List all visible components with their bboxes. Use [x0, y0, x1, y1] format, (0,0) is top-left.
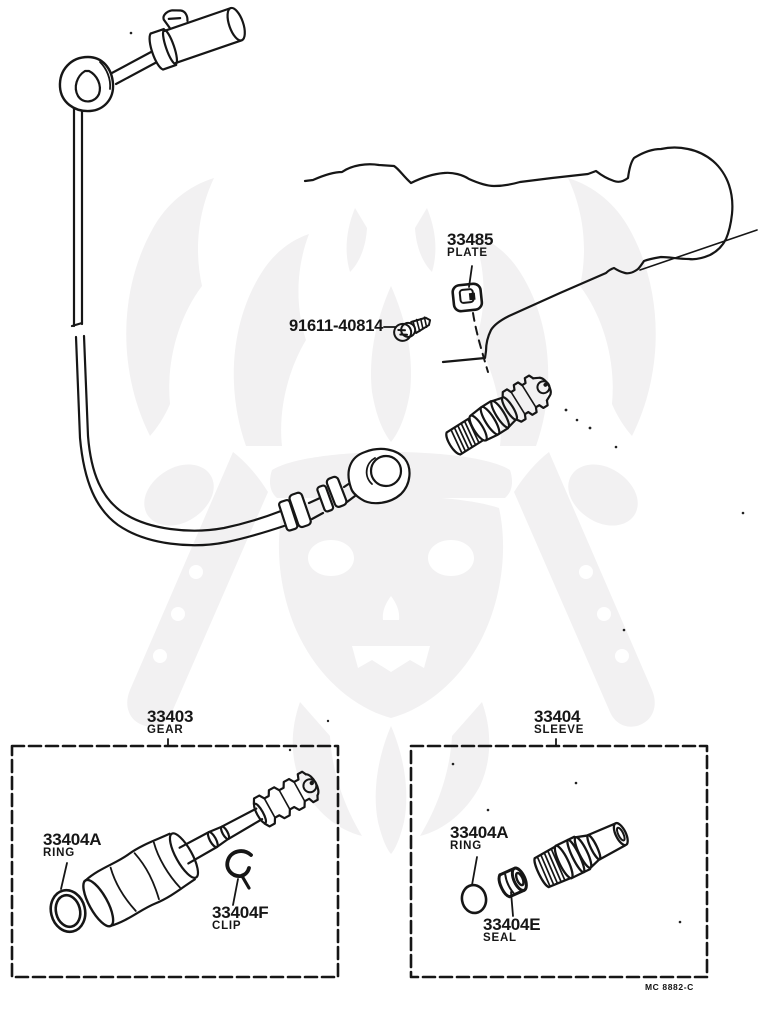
speedometer-cable-drawing	[60, 0, 410, 545]
part-label-gear-group: GEAR	[147, 725, 193, 737]
screw-part-drawing	[391, 312, 433, 343]
scan-specks	[130, 32, 745, 924]
part-number-sleeve-ring: 33404A	[450, 824, 508, 841]
gear-group-box	[12, 746, 338, 977]
callout-leader-lines	[61, 266, 556, 916]
plate-part-drawing	[452, 283, 483, 312]
part-number-plate: 33485	[447, 231, 493, 248]
part-number-sleeve-seal: 33404E	[483, 916, 540, 933]
part-number-screw: 91611-40814	[289, 318, 383, 335]
callout-gear-ring: 33404A RING	[43, 831, 101, 860]
parts-diagram-page: 33485 PLATE 91611-40814 33403 GEAR 33404…	[0, 0, 760, 1018]
part-label-sleeve-ring: RING	[450, 841, 508, 853]
callout-gear-group: 33403 GEAR	[147, 708, 193, 737]
cable-connector-drawing	[141, 0, 249, 71]
callout-sleeve-seal: 33404E SEAL	[483, 916, 540, 945]
driven-gear-drawing	[441, 369, 558, 460]
cable-ferrules-drawing	[278, 476, 355, 532]
gear-shaft-drawing	[76, 758, 329, 933]
callout-screw: 91611-40814	[289, 318, 383, 335]
part-label-sleeve-group: SLEEVE	[534, 725, 584, 737]
part-label-plate: PLATE	[447, 248, 493, 260]
part-label-gear-ring: RING	[43, 848, 101, 860]
part-number-gear-ring: 33404A	[43, 831, 101, 848]
part-number-gear-group: 33403	[147, 708, 193, 725]
sleeve-seal-drawing	[496, 866, 529, 898]
callout-sleeve-ring: 33404A RING	[450, 824, 508, 853]
drawing-code: MC 8882-C	[645, 982, 694, 992]
diagram-line-art	[0, 0, 760, 1018]
sleeve-part-drawing	[531, 816, 633, 890]
callout-plate: 33485 PLATE	[447, 231, 493, 260]
sleeve-oring-drawing	[460, 883, 488, 915]
cable-grommet-drawing	[60, 57, 113, 111]
callout-gear-clip: 33404F CLIP	[212, 904, 268, 933]
part-number-sleeve-group: 33404	[534, 708, 584, 725]
part-label-sleeve-seal: SEAL	[483, 933, 540, 945]
gear-oring-drawing	[46, 887, 89, 936]
part-number-gear-clip: 33404F	[212, 904, 268, 921]
callout-sleeve-group: 33404 SLEEVE	[534, 708, 584, 737]
gear-clip-drawing	[227, 851, 251, 888]
cable-knob-drawing	[349, 449, 410, 503]
part-label-gear-clip: CLIP	[212, 921, 268, 933]
